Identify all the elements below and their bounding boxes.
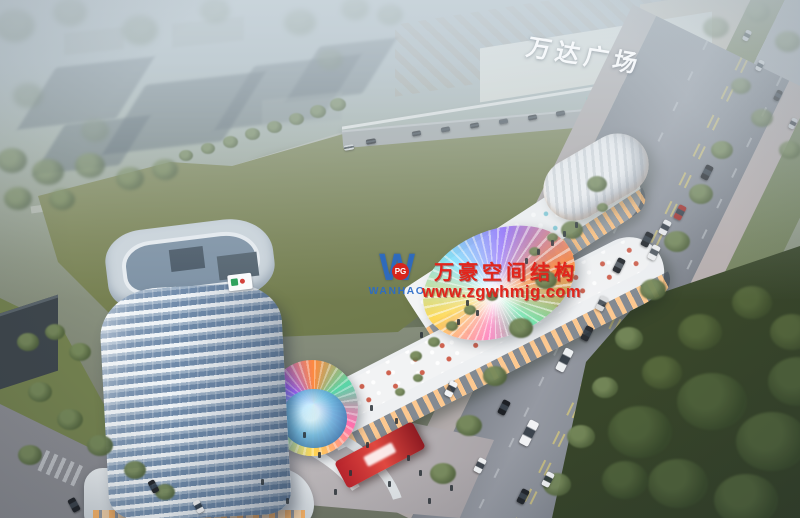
car xyxy=(556,110,566,116)
person xyxy=(366,442,369,448)
car xyxy=(773,89,783,102)
tree xyxy=(430,463,456,484)
person xyxy=(428,498,431,504)
car xyxy=(497,399,511,416)
car xyxy=(499,118,509,124)
person xyxy=(388,481,391,487)
car xyxy=(67,497,81,513)
tree xyxy=(602,461,648,499)
tree xyxy=(87,435,113,456)
tree xyxy=(483,366,507,386)
car xyxy=(344,144,355,151)
tree xyxy=(223,136,238,148)
tree xyxy=(731,78,751,94)
person xyxy=(286,498,289,504)
car xyxy=(473,457,487,474)
tree xyxy=(17,333,39,351)
tree xyxy=(746,2,770,22)
tree xyxy=(714,474,778,518)
watermark-website: www.zgwhmjg.com xyxy=(422,283,581,302)
tree xyxy=(615,327,643,350)
car xyxy=(192,499,204,514)
tree xyxy=(775,31,800,52)
tree xyxy=(592,377,618,398)
car xyxy=(555,347,574,372)
tree xyxy=(410,351,422,361)
car xyxy=(441,126,451,132)
tree xyxy=(703,17,729,38)
tree xyxy=(49,189,75,210)
person xyxy=(450,485,453,491)
tree xyxy=(779,141,800,159)
car xyxy=(700,164,714,181)
car xyxy=(366,138,377,145)
tree xyxy=(81,119,109,142)
tree xyxy=(395,388,405,396)
tree xyxy=(377,4,403,25)
tree xyxy=(330,98,346,111)
tree xyxy=(567,425,595,448)
tree xyxy=(608,406,672,458)
car xyxy=(755,59,765,72)
tree xyxy=(57,409,83,430)
wanhao-logo: W PG WANHAO xyxy=(364,252,430,310)
tree xyxy=(69,343,91,361)
person xyxy=(261,479,264,485)
car xyxy=(470,122,480,128)
tree xyxy=(4,187,32,210)
tree xyxy=(587,176,607,192)
person xyxy=(318,452,321,458)
watermark-company-name: 万豪空间结构 xyxy=(434,256,578,285)
tree xyxy=(0,148,27,173)
tree xyxy=(13,83,43,108)
tree xyxy=(413,374,423,382)
tree xyxy=(751,109,773,127)
tree xyxy=(284,9,316,35)
car xyxy=(519,419,540,447)
person xyxy=(370,405,373,411)
car xyxy=(595,295,609,312)
tree xyxy=(689,184,713,204)
tree xyxy=(770,314,800,350)
tree xyxy=(75,153,105,178)
tree xyxy=(640,279,666,300)
person xyxy=(457,319,460,325)
tree xyxy=(155,484,175,500)
tree xyxy=(677,373,747,430)
tree xyxy=(53,0,87,26)
tree xyxy=(28,382,52,402)
tree xyxy=(122,15,158,45)
car xyxy=(742,29,752,42)
car xyxy=(647,244,661,261)
tree xyxy=(245,128,260,140)
tree xyxy=(45,324,65,340)
tree xyxy=(200,0,230,23)
car xyxy=(412,130,422,136)
rendering-scene: 万达广场 W PG WANHAO 万豪空间结构 www.zgwhmjg.com xyxy=(0,0,800,518)
car xyxy=(673,204,687,221)
tree xyxy=(732,286,772,319)
tree xyxy=(664,231,690,252)
person xyxy=(420,332,423,338)
tree xyxy=(179,150,193,161)
person xyxy=(563,231,566,237)
tree xyxy=(116,167,144,190)
person xyxy=(419,470,422,476)
wanhao-logo-word: WANHAO xyxy=(364,285,430,297)
tree xyxy=(18,445,42,465)
person xyxy=(407,455,410,461)
car xyxy=(612,257,626,274)
car xyxy=(528,114,538,120)
tree xyxy=(0,9,35,42)
tree xyxy=(124,461,146,479)
person xyxy=(349,470,352,476)
tree xyxy=(678,314,722,350)
tree xyxy=(267,121,282,133)
tree xyxy=(32,159,64,185)
tree xyxy=(341,0,369,20)
person xyxy=(334,489,337,495)
tree xyxy=(428,337,440,347)
tree xyxy=(152,159,178,180)
tree xyxy=(201,143,215,154)
tree xyxy=(289,113,304,125)
car xyxy=(788,117,798,130)
person xyxy=(395,418,398,424)
tree xyxy=(736,412,800,471)
tree xyxy=(597,203,608,212)
tree xyxy=(768,357,800,406)
tree xyxy=(642,356,682,389)
tree xyxy=(711,141,733,159)
tree xyxy=(509,318,533,338)
tree xyxy=(456,415,482,436)
tree xyxy=(310,105,326,118)
person xyxy=(575,222,578,228)
car xyxy=(516,488,530,505)
tree xyxy=(648,459,708,508)
car xyxy=(580,325,594,342)
wanhao-logo-badge: PG xyxy=(392,263,409,280)
car xyxy=(444,380,458,398)
watermark: W PG WANHAO 万豪空间结构 www.zgwhmjg.com xyxy=(358,246,594,318)
person xyxy=(303,432,306,438)
tree xyxy=(317,49,343,70)
